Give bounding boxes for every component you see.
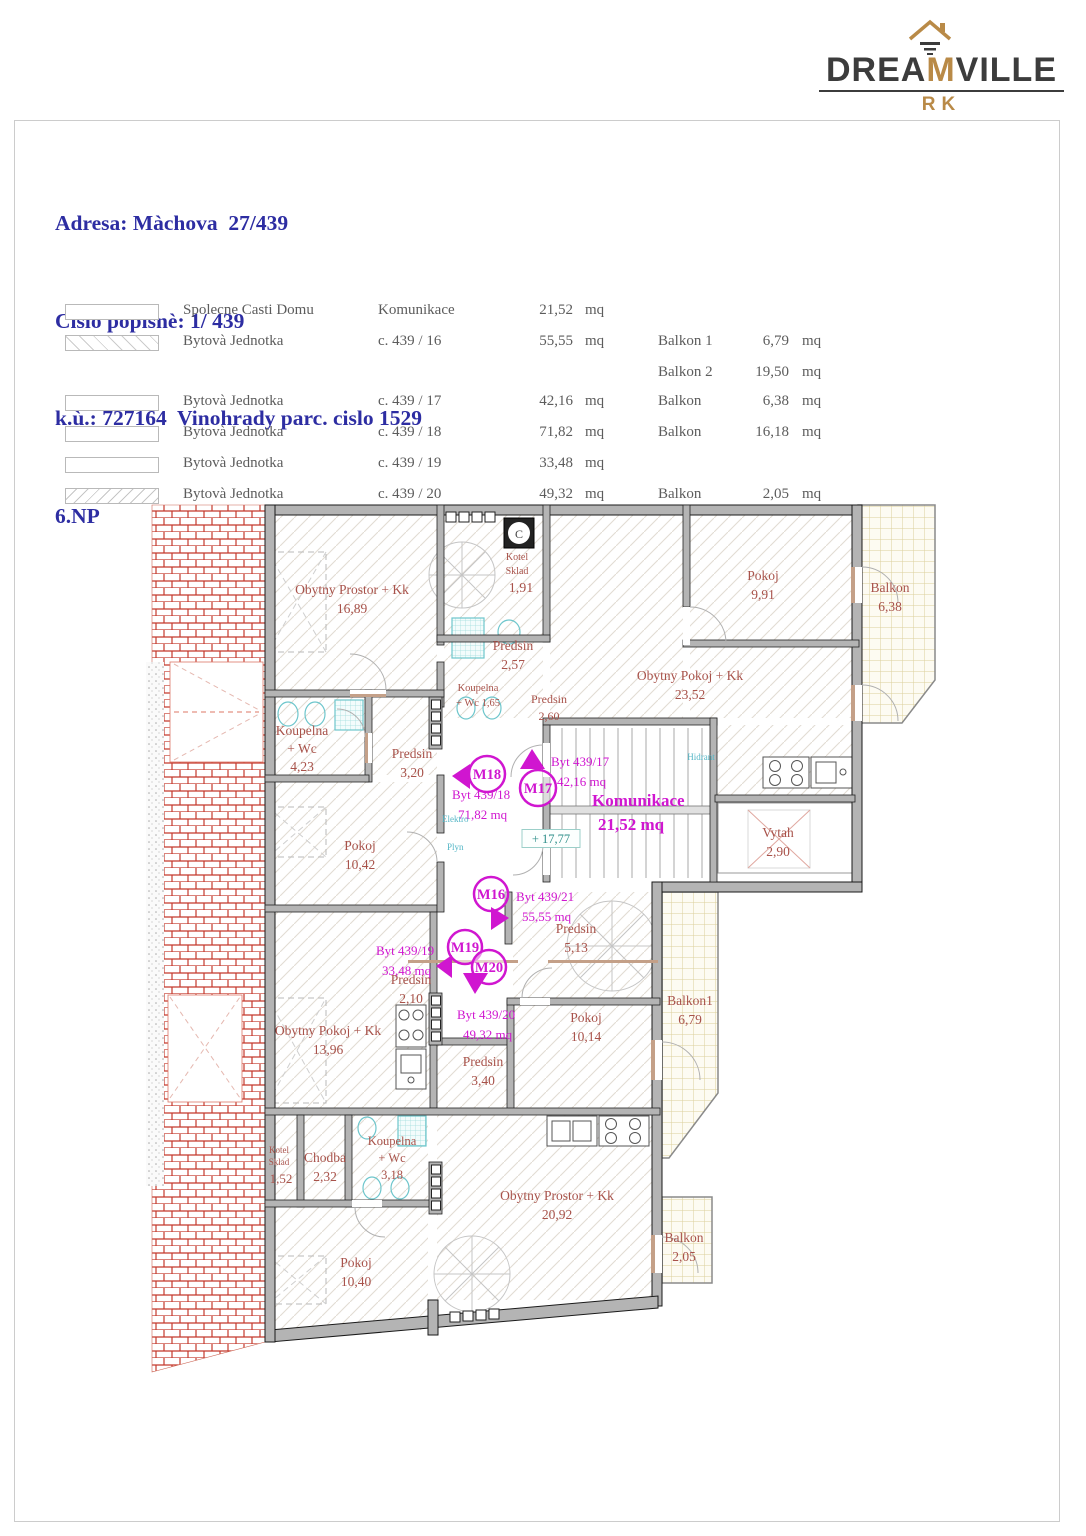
room-label: 6,38	[878, 599, 902, 614]
room-label: 10,40	[341, 1274, 372, 1289]
room-label: Obytny Prostor + Kk	[500, 1188, 614, 1203]
room-label: Obytny Pokoj + Kk	[275, 1023, 381, 1038]
legend-row: Bytovà Jednotkac. 439 / 1742,16mqBalkon6…	[65, 393, 865, 415]
unit-label: 49,32 mq	[463, 1027, 513, 1042]
legend-unit-number: Komunikace	[378, 302, 455, 319]
room-label: 4,23	[290, 759, 314, 774]
room-label: 2,10	[399, 991, 423, 1006]
room-label: 9,91	[751, 587, 775, 602]
room-label: + Wc 1,65	[456, 698, 500, 709]
unit-label: 55,55 mq	[522, 909, 572, 924]
room-label: 2,60	[539, 709, 560, 723]
spiral-stair	[434, 1236, 510, 1312]
room-label: Pokoj	[340, 1255, 372, 1270]
legend-balcony-area: 16,18	[717, 424, 789, 441]
unit-marker-id: M20	[475, 960, 503, 976]
room-label: Predsin	[392, 746, 433, 761]
legend-area: 71,82	[495, 424, 573, 441]
tech-label: C	[515, 527, 523, 541]
unit-label: Byt 439/21	[516, 889, 574, 904]
legend-category: Bytovà Jednotka	[183, 393, 283, 410]
legend-unit-number: c. 439 / 16	[378, 333, 441, 350]
room-label: Balkon	[665, 1230, 704, 1245]
room-label: Pokoj	[570, 1010, 602, 1025]
unit-label: Byt 439/20	[457, 1007, 515, 1022]
legend-area-unit: mq	[585, 333, 604, 350]
room-label: 1,91	[509, 581, 534, 596]
legend-swatch	[65, 335, 159, 351]
brand-name: DREAMVILLE	[819, 52, 1064, 92]
legend-unit-number: c. 439 / 17	[378, 393, 441, 410]
brand-logo: DREAMVILLE RK	[819, 20, 1064, 116]
room-label: 2,32	[313, 1169, 337, 1184]
legend-unit-number: c. 439 / 18	[378, 424, 441, 441]
room-label: 2,57	[501, 657, 525, 672]
legend-row: Bytovà Jednotkac. 439 / 1655,55mqBalkon …	[65, 333, 865, 355]
legend-balcony-row: Balkon 219,50mq	[65, 364, 865, 386]
unit-marker-id: M19	[451, 940, 479, 956]
room-label: 2,05	[672, 1249, 696, 1264]
legend-balcony-area: 6,79	[717, 333, 789, 350]
unit-marker-id: M17	[524, 781, 552, 797]
room-label: 6,79	[678, 1012, 702, 1027]
legend-balcony-unit: mq	[802, 364, 821, 381]
legend-swatch	[65, 457, 159, 473]
brand-suffix: VILLE	[956, 51, 1057, 89]
tech-label: Hidrant	[687, 752, 715, 762]
legend-area: 55,55	[495, 333, 573, 350]
room-label: Kotel	[269, 1145, 289, 1155]
roof-side-strip	[146, 662, 164, 1186]
legend-area-unit: mq	[585, 302, 604, 319]
room-label: + Wc	[287, 741, 316, 756]
floor-plan: Obytny Prostor + Kk16,89KotelSklad1,91Po…	[140, 500, 940, 1380]
room-label: Predsin	[493, 638, 534, 653]
unit-marker-id: M16	[477, 887, 505, 903]
room-label: Predsin	[463, 1054, 504, 1069]
legend-swatch	[65, 395, 159, 411]
roof-strip	[146, 505, 265, 1372]
room-label: Balkon	[871, 580, 910, 595]
legend-category: Bytovà Jednotka	[183, 424, 283, 441]
room-label: Obytny Pokoj + Kk	[637, 668, 743, 683]
room-label: Pokoj	[344, 838, 376, 853]
legend-row: Bytovà Jednotkac. 439 / 1871,82mqBalkon1…	[65, 424, 865, 446]
room-label: Vytah	[762, 825, 794, 840]
legend-row: Bytovà Jednotkac. 439 / 1933,48mq	[65, 455, 865, 477]
legend-area: 21,52	[495, 302, 573, 319]
legend-balcony-area: 6,38	[717, 393, 789, 410]
unit-marker-id: M18	[473, 767, 501, 783]
unit-marker-arrow-icon	[452, 764, 470, 789]
legend-area: 42,16	[495, 393, 573, 410]
tech-label: Elektro	[442, 814, 469, 824]
room-label: Obytny Prostor + Kk	[295, 582, 409, 597]
legend-unit-number: c. 439 / 19	[378, 455, 441, 472]
room-label: Sklad	[506, 566, 529, 577]
legend-row: Spolecne Casti DomuKomunikace21,52mq	[65, 302, 865, 324]
room-label: 20,92	[542, 1207, 572, 1222]
room-label: 16,89	[337, 601, 368, 616]
room-label: 23,52	[675, 687, 705, 702]
legend-category: Bytovà Jednotka	[183, 333, 283, 350]
unit-label: 21,52 mq	[598, 815, 665, 834]
unit-label: 33,48 mq	[382, 963, 432, 978]
room-label: Chodba	[304, 1150, 346, 1165]
room-label: Predsin	[531, 692, 567, 706]
legend-balcony-unit: mq	[802, 333, 821, 350]
room-label: + Wc	[378, 1151, 406, 1165]
room-label: Koupelna	[276, 723, 328, 738]
room-label: Koupelna	[368, 1134, 417, 1148]
page: DREAMVILLE RK Adresa: Màchova 27/439 Cis…	[0, 0, 1086, 1536]
legend-balcony-unit: mq	[802, 393, 821, 410]
room-label: Kotel	[506, 552, 528, 563]
legend-balcony-label: Balkon 2	[658, 364, 713, 381]
room-label: Sklad	[269, 1157, 290, 1167]
room-label: 1,52	[270, 1171, 293, 1186]
room-label: Pokoj	[747, 568, 779, 583]
unit-label: Komunikace	[592, 791, 685, 810]
house-icon	[907, 18, 953, 58]
legend-swatch	[65, 304, 159, 320]
skylight-window	[170, 662, 263, 762]
room-label: 10,42	[345, 857, 375, 872]
legend-table: Spolecne Casti DomuKomunikace21,52mqByto…	[65, 302, 865, 517]
legend-balcony-label: Balkon	[658, 393, 701, 410]
tech-label: Plyn	[447, 842, 464, 852]
legend-balcony-label: Balkon	[658, 424, 701, 441]
tech-label: + 17,77	[532, 832, 570, 846]
legend-area: 33,48	[495, 455, 573, 472]
legend-area-unit: mq	[585, 455, 604, 472]
unit-label: 42,16 mq	[557, 774, 607, 789]
room-label: Balkon1	[667, 993, 713, 1008]
room-label: 5,13	[564, 940, 588, 955]
unit-marker-arrow-icon	[436, 955, 452, 978]
unit-label: Byt 439/17	[551, 754, 610, 769]
legend-balcony-unit: mq	[802, 424, 821, 441]
legend-balcony-area: 19,50	[717, 364, 789, 381]
legend-balcony-label: Balkon 1	[658, 333, 713, 350]
room-label: 3,18	[381, 1168, 403, 1182]
unit-label: Byt 439/19	[376, 943, 434, 958]
legend-area-unit: mq	[585, 393, 604, 410]
room-label: 3,40	[471, 1073, 495, 1088]
room-label: 2,90	[766, 844, 790, 859]
skylight-window	[168, 995, 242, 1102]
legend-category: Bytovà Jednotka	[183, 455, 283, 472]
room-label: 3,20	[400, 765, 424, 780]
legend-swatch	[65, 426, 159, 442]
room-label: Koupelna	[458, 683, 499, 694]
brand-subtitle: RK	[819, 94, 1064, 116]
legend-category: Spolecne Casti Domu	[183, 302, 314, 319]
address-line: Adresa: Màchova 27/439	[55, 207, 422, 240]
balcony-6-38	[858, 505, 935, 723]
room-label: 13,96	[313, 1042, 344, 1057]
room-label: 10,14	[571, 1029, 602, 1044]
legend-area-unit: mq	[585, 424, 604, 441]
